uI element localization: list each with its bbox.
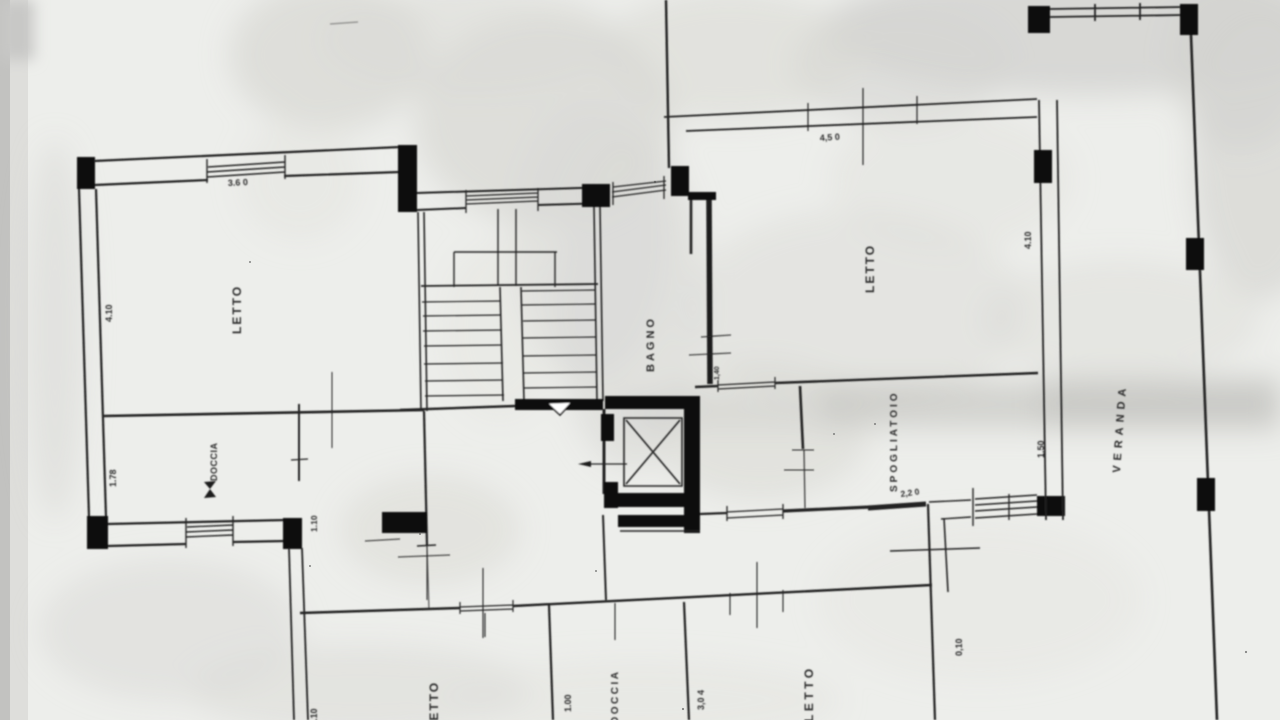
svg-text:1.78: 1.78 — [108, 469, 118, 487]
svg-text:0,10: 0,10 — [954, 638, 964, 656]
svg-text:1.00: 1.00 — [563, 694, 573, 712]
svg-text:BAGNO: BAGNO — [645, 316, 657, 372]
svg-text:DOCCIA: DOCCIA — [209, 443, 219, 482]
svg-text:LETTO: LETTO — [863, 244, 877, 293]
svg-text:4,5 0: 4,5 0 — [819, 132, 840, 143]
svg-text:3.6 0: 3.6 0 — [228, 177, 249, 188]
svg-text:LETTO: LETTO — [427, 681, 441, 720]
svg-text:SPOGLIATOIO: SPOGLIATOIO — [889, 390, 900, 492]
svg-text:LETTO: LETTO — [802, 665, 816, 720]
svg-text:1.10: 1.10 — [309, 708, 319, 720]
svg-text:4.10: 4.10 — [104, 304, 114, 322]
svg-text:DOCCIA: DOCCIA — [610, 670, 621, 720]
svg-text:1,40: 1,40 — [714, 366, 721, 380]
svg-text:4.10: 4.10 — [1023, 231, 1033, 249]
svg-text:1,50: 1,50 — [1036, 440, 1046, 458]
svg-text:1.10: 1.10 — [309, 515, 319, 532]
svg-text:3,0 4: 3,0 4 — [696, 690, 706, 710]
svg-text:LETTO: LETTO — [230, 285, 244, 334]
